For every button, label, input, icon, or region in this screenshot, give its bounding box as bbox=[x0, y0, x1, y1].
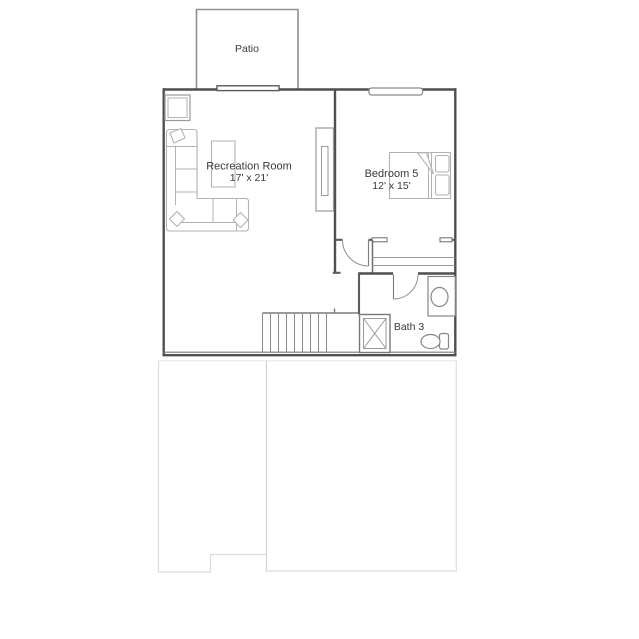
shower bbox=[360, 315, 391, 353]
bath3-label: Bath 3 bbox=[394, 321, 425, 333]
recreation-room-label: Recreation Room bbox=[206, 161, 292, 173]
stairs bbox=[263, 309, 359, 353]
floor-plan: Patio Recreation Room 17' x 21' Bedroom … bbox=[0, 0, 639, 639]
media-console bbox=[316, 128, 334, 211]
end-table bbox=[165, 95, 190, 121]
closet-shelves bbox=[373, 258, 456, 266]
recreation-room-dimensions: 17' x 21' bbox=[230, 172, 268, 184]
lower-level-outline bbox=[159, 361, 457, 572]
toilet bbox=[421, 334, 449, 350]
bedroom-door bbox=[343, 240, 369, 266]
floor-plan-drawing: Patio Recreation Room 17' x 21' Bedroom … bbox=[0, 0, 639, 639]
vanity-sink bbox=[428, 277, 455, 317]
bedroom5-label: Bedroom 5 bbox=[365, 168, 419, 180]
patio-door-threshold bbox=[217, 86, 279, 91]
bedroom-window bbox=[369, 88, 423, 95]
patio-label: Patio bbox=[235, 43, 259, 55]
bedroom5-dimensions: 12' x 15' bbox=[372, 180, 410, 192]
bath-door bbox=[394, 275, 419, 300]
